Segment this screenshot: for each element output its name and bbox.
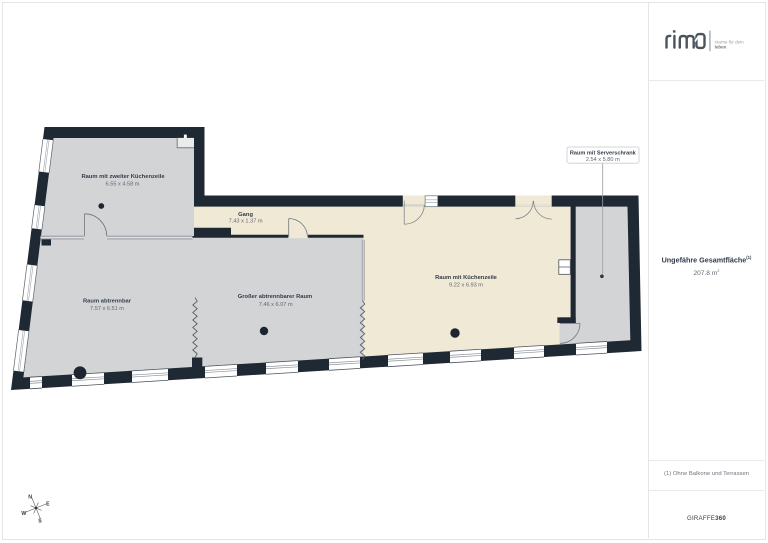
svg-text:7.43 x 1.37 m: 7.43 x 1.37 m <box>229 219 263 225</box>
svg-text:Raum mit Serverschrank: Raum mit Serverschrank <box>570 150 637 156</box>
svg-text:9.22 x 6.93 m: 9.22 x 6.93 m <box>449 283 483 289</box>
svg-text:Raum mit Küchenzeile: Raum mit Küchenzeile <box>435 275 498 281</box>
svg-text:S: S <box>38 518 42 524</box>
svg-text:Raum abtrennbar: Raum abtrennbar <box>83 298 132 304</box>
svg-text:W: W <box>21 511 26 517</box>
svg-text:Gang: Gang <box>238 212 253 218</box>
svg-text:Großer abtrennbarer Raum: Großer abtrennbarer Raum <box>238 294 312 300</box>
svg-text:E: E <box>46 502 50 508</box>
svg-text:7.46 x 6.07 m: 7.46 x 6.07 m <box>259 302 293 308</box>
svg-text:6.55 x 4.58 m: 6.55 x 4.58 m <box>106 182 140 188</box>
svg-text:7.57 x 6.51 m: 7.57 x 6.51 m <box>90 306 124 312</box>
svg-text:Raum mit zweiter Küchenzeile: Raum mit zweiter Küchenzeile <box>81 174 165 180</box>
svg-text:N: N <box>28 495 32 501</box>
svg-text:2.54 x 5.80 m: 2.54 x 5.80 m <box>586 157 620 163</box>
